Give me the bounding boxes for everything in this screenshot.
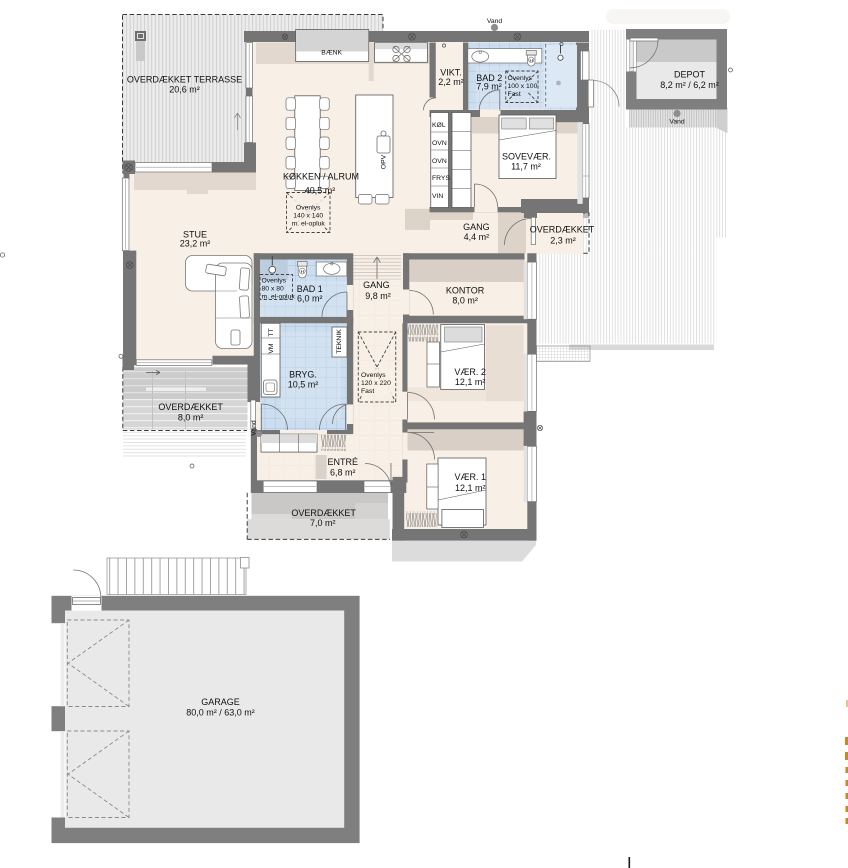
svg-text:TEKNIK: TEKNIK	[336, 329, 343, 354]
svg-text:Ovenlys: Ovenlys	[262, 278, 287, 285]
svg-text:7,9 m²: 7,9 m²	[476, 82, 502, 92]
svg-text:OVERDÆKKET TERRASSE: OVERDÆKKET TERRASSE	[127, 75, 242, 85]
svg-text:8,0 m²: 8,0 m²	[178, 412, 204, 422]
svg-text:BRYG.: BRYG.	[289, 370, 317, 380]
svg-text:OVN: OVN	[432, 140, 447, 147]
svg-text:OVERDÆKKET: OVERDÆKKET	[158, 402, 223, 412]
svg-text:23,2 m²: 23,2 m²	[180, 239, 211, 249]
svg-text:OPV: OPV	[381, 154, 388, 169]
svg-text:KØKKEN / ALRUM: KØKKEN / ALRUM	[283, 172, 359, 182]
svg-text:VIKT.: VIKT.	[440, 68, 462, 78]
svg-text:m. el-opluk: m. el-opluk	[262, 294, 296, 301]
svg-text:11,7 m²: 11,7 m²	[511, 162, 541, 172]
svg-text:Vand: Vand	[669, 119, 685, 126]
svg-text:80 x 80: 80 x 80	[262, 286, 285, 293]
svg-text:ENTRÉ: ENTRÉ	[328, 457, 359, 467]
svg-text:VIN: VIN	[432, 193, 443, 200]
svg-text:12,1 m²: 12,1 m²	[455, 377, 486, 387]
svg-text:6,0 m²: 6,0 m²	[297, 294, 323, 304]
svg-text:140 x 140: 140 x 140	[293, 213, 323, 220]
svg-text:KØL: KØL	[432, 122, 446, 129]
svg-text:80,0 m² / 63,0 m²: 80,0 m² / 63,0 m²	[186, 708, 255, 718]
svg-text:2,2 m²: 2,2 m²	[438, 77, 464, 87]
svg-text:OVN: OVN	[432, 158, 447, 165]
svg-text:Vand: Vand	[251, 420, 258, 436]
svg-text:H: H	[301, 269, 305, 275]
svg-text:8,0 m²: 8,0 m²	[452, 295, 478, 305]
svg-text:100 x 100: 100 x 100	[508, 83, 538, 90]
svg-text:Ovenlys: Ovenlys	[361, 372, 386, 379]
svg-text:GANG: GANG	[363, 280, 390, 290]
svg-text:H: H	[529, 58, 533, 64]
svg-text:12,1 m²: 12,1 m²	[455, 483, 486, 493]
svg-text:GARAGE: GARAGE	[201, 697, 240, 707]
svg-text:OVERDÆKKET: OVERDÆKKET	[530, 225, 595, 235]
svg-text:Fast: Fast	[361, 388, 374, 395]
svg-text:Fast: Fast	[508, 91, 521, 98]
svg-text:9,8 m²: 9,8 m²	[365, 291, 391, 301]
svg-text:KONTOR: KONTOR	[446, 285, 485, 295]
svg-text:6,8 m²: 6,8 m²	[330, 468, 356, 478]
svg-text:120 x 220: 120 x 220	[361, 380, 391, 387]
svg-text:Ovenlys: Ovenlys	[296, 205, 321, 212]
svg-text:BAD 1: BAD 1	[297, 284, 323, 294]
svg-text:Ovenlys: Ovenlys	[508, 75, 533, 82]
svg-text:VÆR. 1: VÆR. 1	[454, 472, 486, 482]
svg-text:BÆNK: BÆNK	[321, 50, 342, 57]
svg-text:VÆR. 2: VÆR. 2	[454, 367, 486, 377]
svg-text:VM: VM	[268, 343, 275, 354]
svg-text:10,5 m²: 10,5 m²	[288, 380, 319, 390]
svg-text:2,3 m²: 2,3 m²	[550, 236, 576, 246]
svg-text:FRYS: FRYS	[432, 175, 450, 182]
svg-text:20,6 m²: 20,6 m²	[169, 85, 200, 95]
svg-text:DEPOT: DEPOT	[674, 70, 706, 80]
svg-text:8,2 m² / 6,2 m²: 8,2 m² / 6,2 m²	[660, 80, 719, 90]
svg-text:Vand: Vand	[487, 18, 503, 25]
svg-text:SOVEVÆR.: SOVEVÆR.	[502, 152, 551, 162]
svg-text:OVERDÆKKET: OVERDÆKKET	[291, 508, 356, 518]
svg-text:7,0 m²: 7,0 m²	[310, 518, 336, 528]
svg-text:TT: TT	[268, 328, 275, 336]
svg-text:4,4 m²: 4,4 m²	[464, 232, 490, 242]
svg-text:m. el-opluk: m. el-opluk	[292, 221, 326, 228]
svg-text:GANG: GANG	[463, 222, 490, 232]
svg-text:40,5 m²: 40,5 m²	[305, 186, 336, 196]
